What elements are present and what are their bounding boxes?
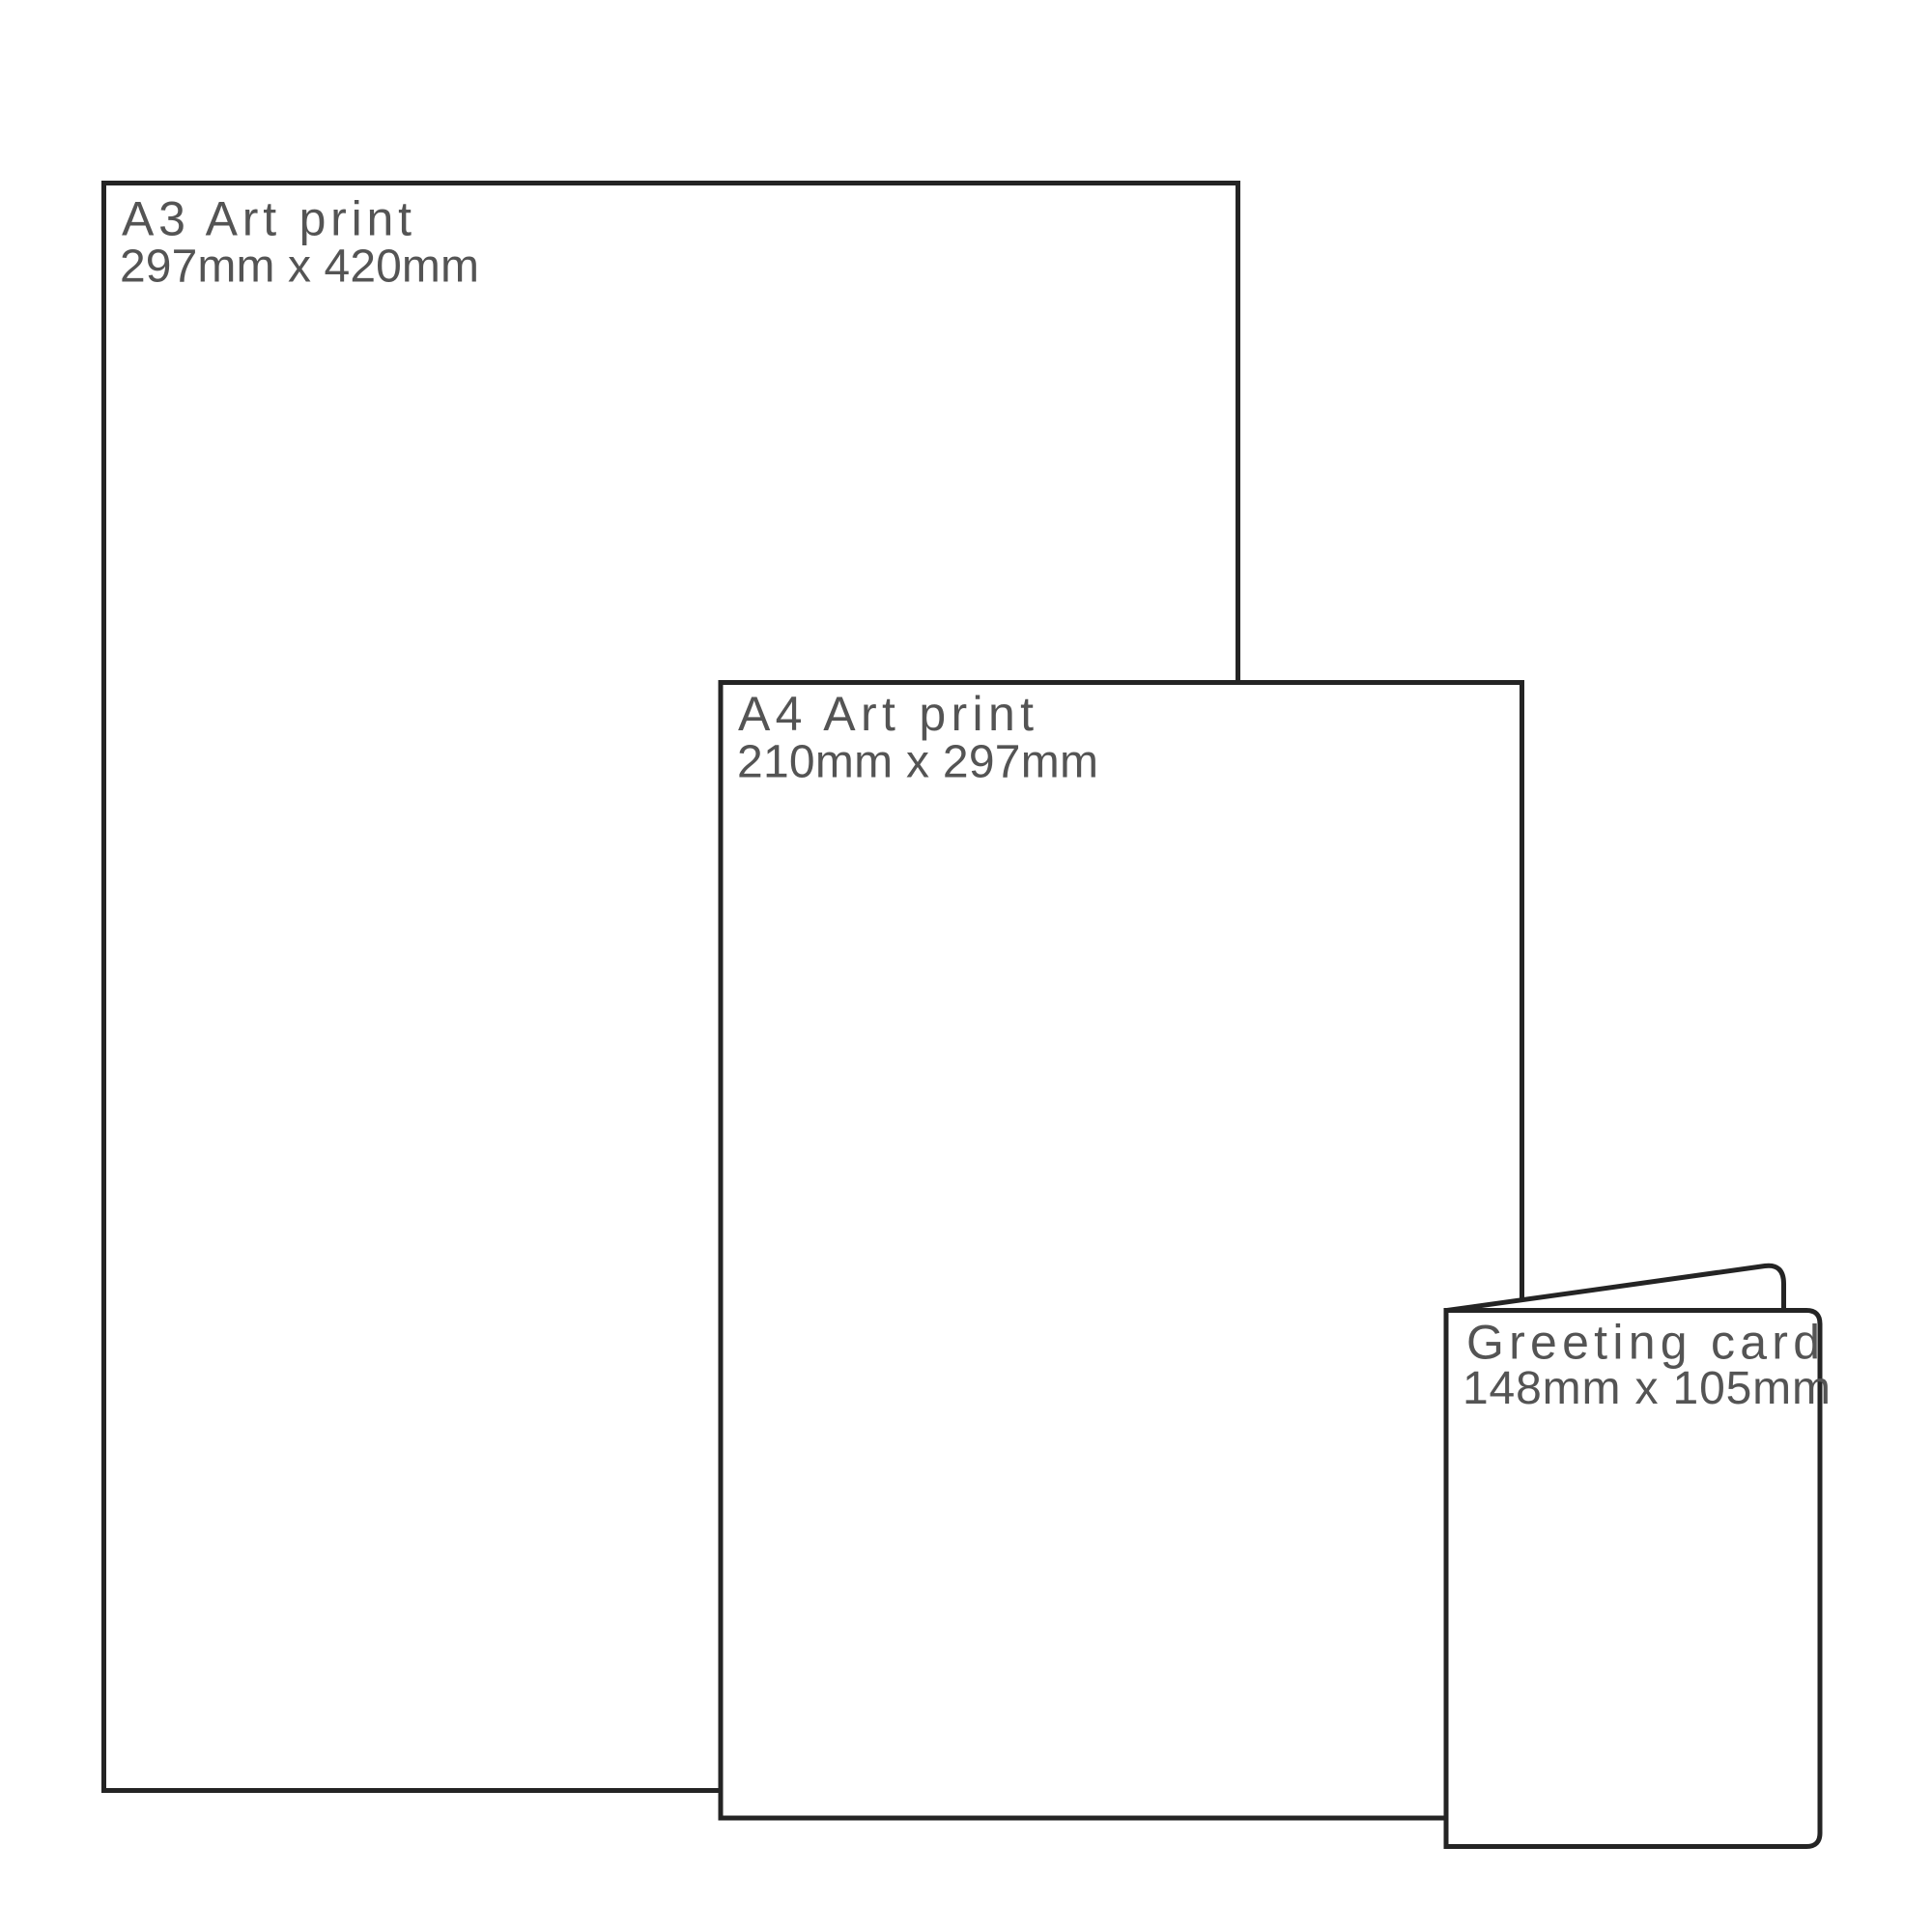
svg-text:A3 Art print: A3 Art print (122, 192, 412, 246)
svg-text:297mm x 420mm: 297mm x 420mm (120, 241, 479, 292)
svg-text:148mm x 105mm: 148mm x 105mm (1463, 1363, 1831, 1414)
svg-text:A4 Art print: A4 Art print (738, 687, 1034, 741)
svg-text:210mm x 297mm: 210mm x 297mm (737, 737, 1098, 788)
